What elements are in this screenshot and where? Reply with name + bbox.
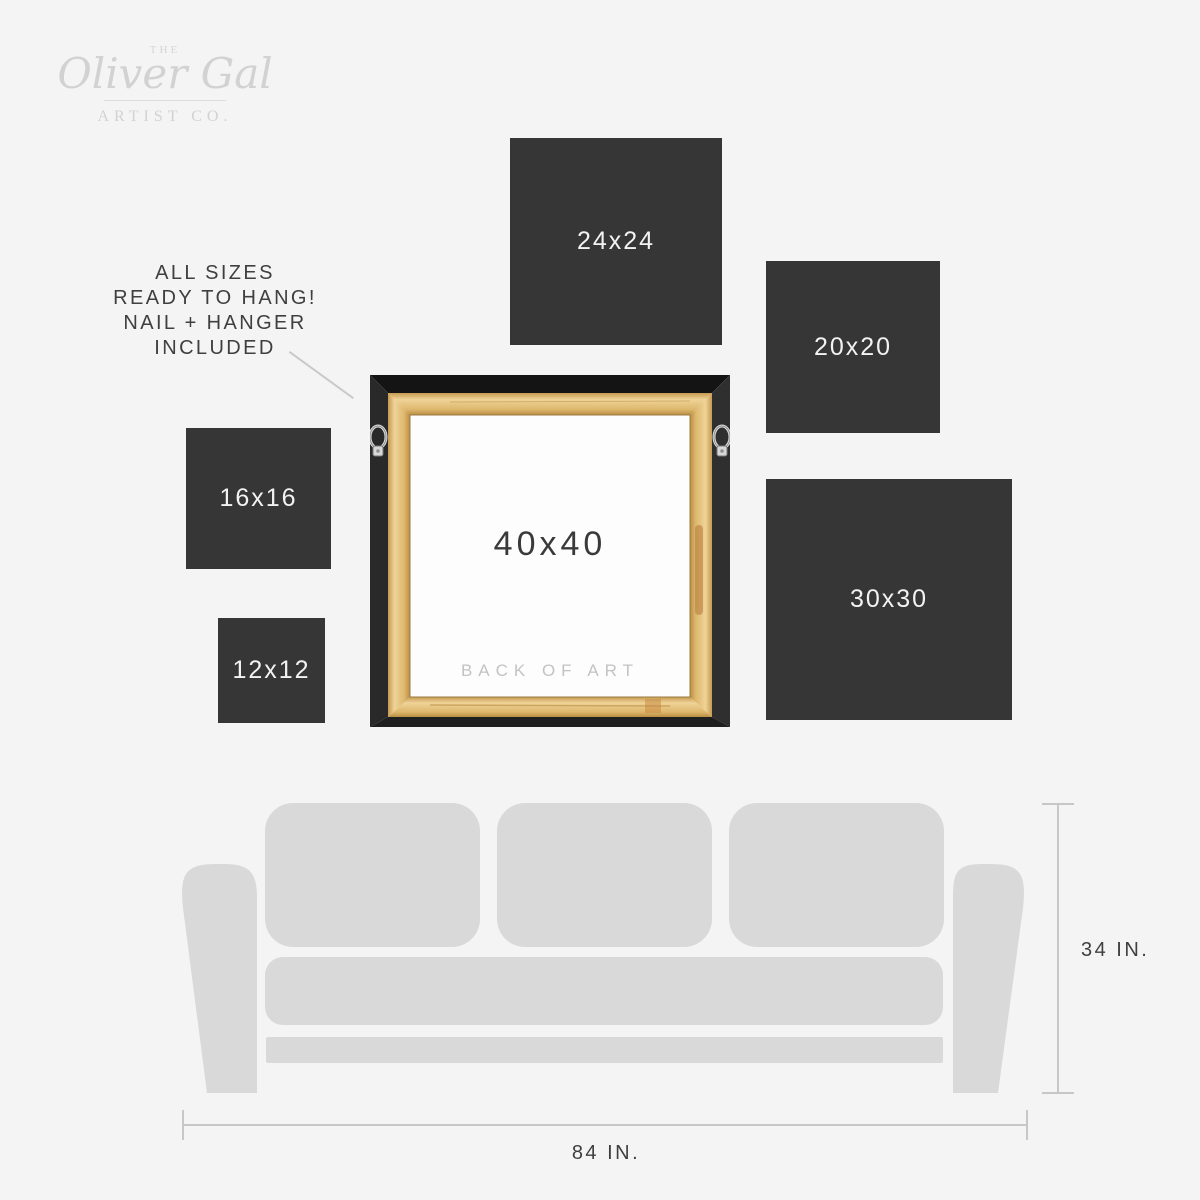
sofa-graphic — [0, 0, 1200, 1200]
sofa-arm-left — [182, 864, 257, 1093]
sofa-width-label: 84 IN. — [540, 1142, 672, 1165]
width-dimension-line — [183, 1110, 1027, 1140]
sofa-base-rail — [266, 1037, 943, 1063]
sofa-back-cushion — [265, 803, 480, 947]
sofa-back-cushion — [729, 803, 944, 947]
height-dimension-line — [1042, 804, 1074, 1093]
size-guide-graphic: THE Oliver Gal ARTIST CO. ALL SIZES READ… — [0, 0, 1200, 1200]
sofa-arm-right — [953, 864, 1024, 1093]
sofa-back-cushion — [497, 803, 712, 947]
sofa-seat-cushion — [265, 957, 943, 1025]
sofa-height-label: 34 IN. — [1081, 939, 1149, 962]
